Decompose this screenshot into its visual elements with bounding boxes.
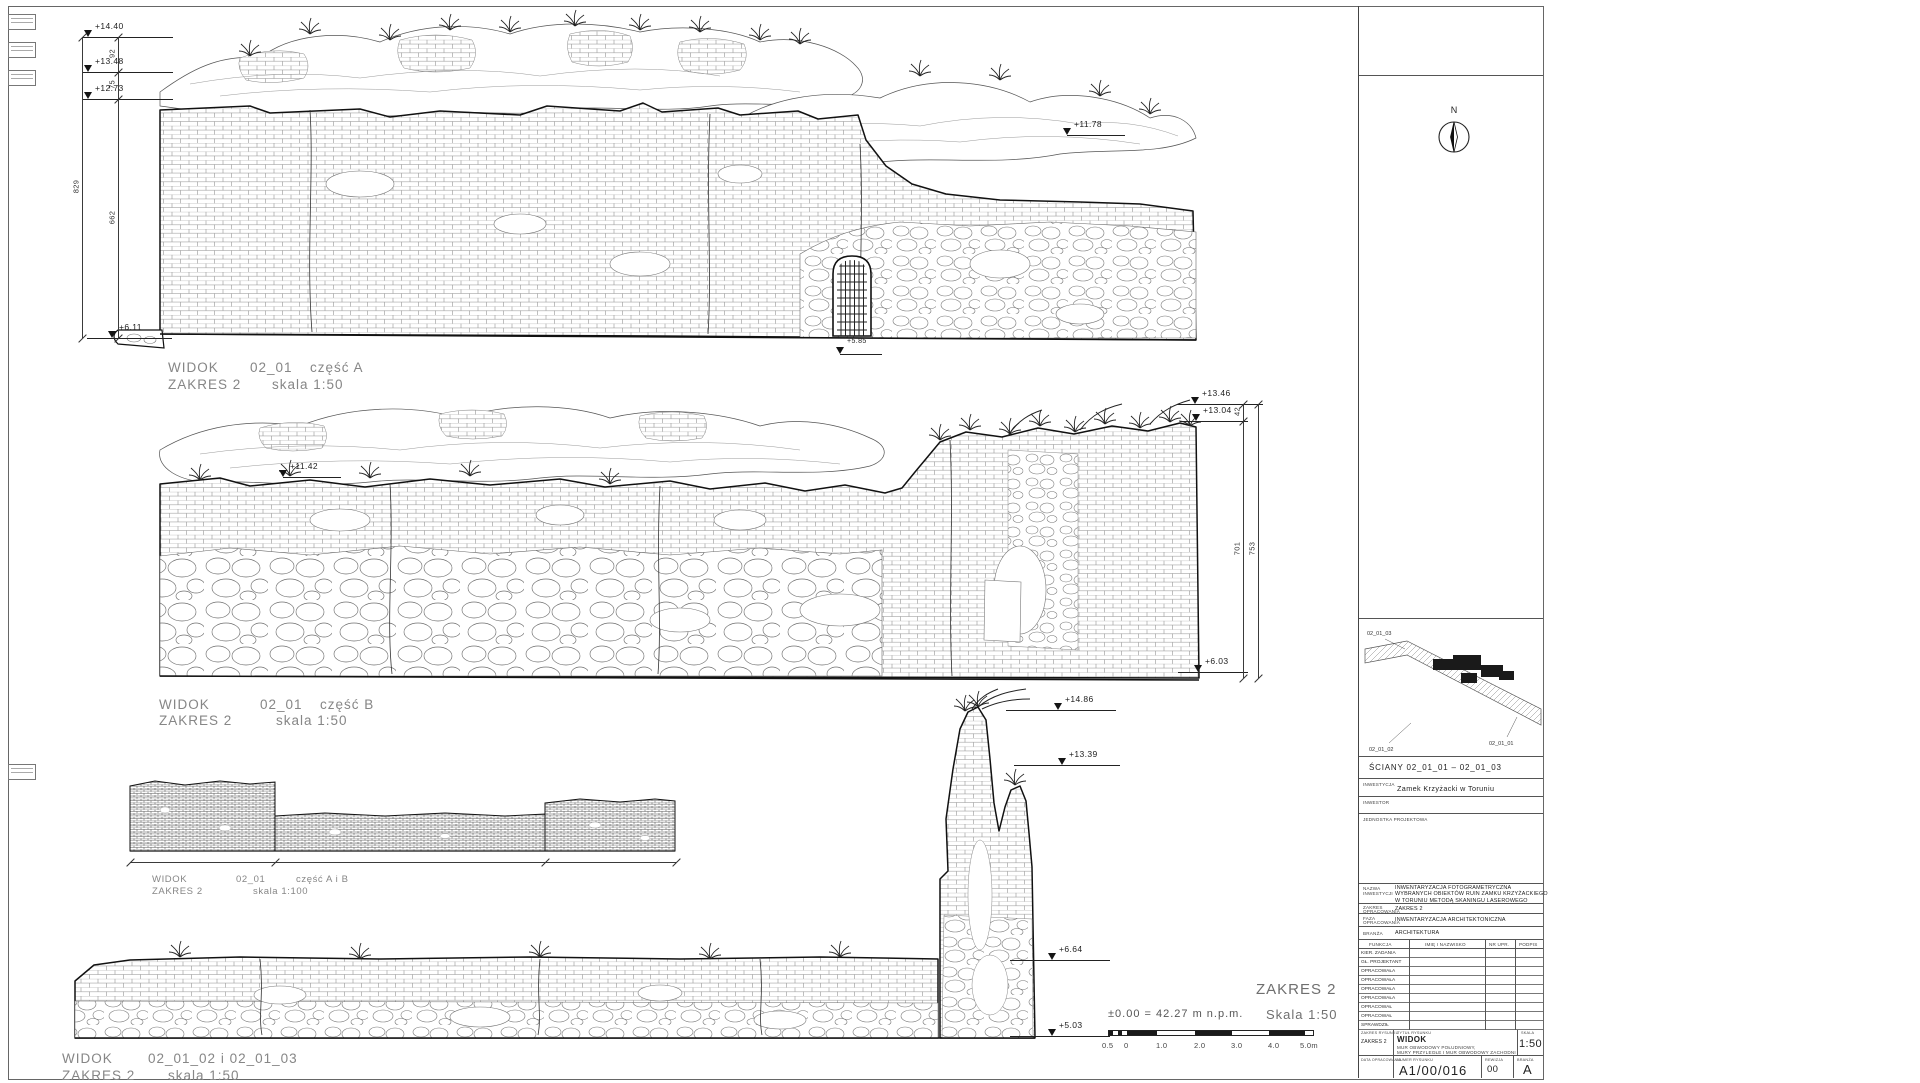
personnel-column-divider [1485,940,1486,1030]
caption-part: część A i B [296,874,349,885]
elevation-marker-arrow [1058,758,1066,765]
elevation-marker-line [82,99,173,100]
elevation-marker-arrow [1194,665,1202,672]
jednostka-row: JEDNOSTKA PROJEKTOWA [1359,814,1543,884]
title-block: N 02_01_03 [1358,6,1542,1078]
inwestycja-value: Zamek Krzyżacki w Toruniu [1397,784,1494,793]
branza-row: BRANŻA ARCHITEKTURA [1359,927,1543,940]
gate-door [833,256,871,336]
margin-tag [8,764,36,780]
site-plan-box: 02_01_03 02_01_02 02_01_01 [1359,618,1543,757]
personnel-role: OPRACOWAŁ [1361,1005,1392,1010]
personnel-header: NR UPR. [1489,942,1509,947]
elevation-marker-line [1010,960,1110,961]
caption-zakres: ZAKRES 2 [62,1068,135,1083]
caption-scale: skala 1:50 [272,377,344,392]
dimension-line [118,37,119,338]
branza-value: ARCHITEKTURA [1395,930,1439,937]
project-name-row: NAZWA INWESTYCJI INWENTARYZACJA FOTOGRAM… [1359,884,1543,904]
strip-branza-value: A [1523,1062,1532,1077]
scale-bar [1108,1030,1314,1036]
inwestor-label: INWESTOR [1363,800,1389,805]
personnel-column-divider [1515,940,1516,1030]
elevation-marker-arrow [1048,953,1056,960]
personnel-role: SPRAWDZIŁ [1361,1023,1389,1028]
elevation-marker-arrow [1063,128,1071,135]
scale-bar-segment [1127,1031,1157,1035]
caption-scale: skala 1:50 [168,1068,240,1083]
site-plan-caption-row: ŚCIANY 02_01_01 – 02_01_03 [1359,757,1543,779]
site-plan-drawing: 02_01_03 02_01_02 02_01_01 [1359,619,1543,758]
elevation-marker-line [82,37,173,38]
personnel-role: KIER. ZADANIA [1361,951,1396,956]
elevation-marker-line [1014,765,1120,766]
caption-part: część A [310,360,364,375]
strip-row-2: DATA OPRACOWANIA NUMER RYSUNKU A1/00/016… [1359,1056,1543,1078]
scale-stamp: Skala 1:50 [1266,1007,1337,1022]
elevation-marker-arrow [1048,1029,1056,1036]
elevation-marker-line [1067,135,1125,136]
elevation-a-drawing [100,14,1220,368]
site-plan-label: 02_01_03 [1367,631,1391,637]
site-plan-label: 02_01_01 [1489,741,1513,747]
zakres-row: ZAKRES OPRACOWANIA ZAKRES 2 [1359,904,1543,914]
scale-value: 1:50 [1519,1038,1542,1050]
elevation-marker-arrow [108,331,116,338]
inwestor-row: INWESTOR [1359,797,1543,814]
inwestycja-label: INWESTYCJA [1363,782,1395,787]
drawing-subtitle-2: MURY PRZYLEGŁE I MUR OBWODOWY ZACHODNI [1397,1050,1516,1055]
elevation-marker-label: +11.78 [1074,119,1102,129]
caption-code: 02_01 [250,360,293,375]
dimension-line [130,862,676,863]
elevation-marker-arrow [84,92,92,99]
elevation-marker-line [82,72,173,73]
site-plan-caption: ŚCIANY 02_01_01 – 02_01_03 [1369,763,1502,772]
compass-n-label: N [1451,105,1458,115]
elevation-marker-arrow [1192,414,1200,421]
personnel-header: FUNKCJA [1369,942,1392,947]
elevation-marker-label: +13.04 [1203,405,1232,415]
margin-tag [8,70,36,86]
date-label: DATA OPRACOWANIA [1361,1058,1401,1063]
scale-label: SKALA [1521,1031,1534,1036]
elevation-marker-line [1006,710,1116,711]
branza-label: BRANŻA [1363,931,1383,936]
elevation-marker-label: +14.40 [95,21,124,31]
dimension-value: 42 [1233,397,1242,427]
dimension-line [1243,404,1244,678]
elevation-marker-arrow [279,470,287,477]
drawing-title: WIDOK [1397,1035,1427,1044]
dimension-value: 829 [72,172,81,202]
elevation-marker-label: +11.42 [290,461,318,471]
elevation-marker-label: +13.46 [1202,388,1231,398]
drawing-number: A1/00/016 [1399,1063,1467,1078]
site-plan-label: 02_01_02 [1369,747,1393,753]
dimension-value: 662 [108,203,117,233]
dimension-value: 701 [1233,534,1242,564]
caption-word: WIDOK [168,360,219,375]
elevation-marker-arrow [1191,397,1199,404]
scale-bar-segment [1195,1031,1232,1035]
personnel-header: PODPIS [1519,942,1538,947]
drawing-sheet: WIDOK 02_01 część A ZAKRES 2 skala 1:50 … [0,0,1920,1080]
elevation-marker-label: +6.11 [119,322,142,332]
strip-zakres-value: ZAKRES 2 [1361,1039,1387,1046]
scale-bar-segment [1118,1031,1122,1035]
faza-value: INWENTARYZACJA ARCHITEKTONICZNA [1395,917,1506,924]
personnel-role: OPRACOWAŁA [1361,987,1395,992]
caption-part: część B [320,697,374,712]
scale-bar-label: 5.0m [1300,1041,1318,1050]
faza-row: FAZA OPRACOWANIA INWENTARYZACJA ARCHITEK… [1359,914,1543,927]
personnel-column-divider [1409,940,1410,1030]
elevation-marker-arrow [84,65,92,72]
elevation-marker-line [283,477,341,478]
project-name-label2: INWESTYCJI [1363,891,1393,896]
caption-scale: skala 1:50 [276,713,348,728]
zakres-value: ZAKRES 2 [1395,906,1423,913]
scale-bar-label: 0.5 [1102,1041,1113,1050]
elevation-marker-line [1010,1036,1110,1037]
caption-word: WIDOK [159,697,210,712]
caption-word: WIDOK [152,874,187,885]
zakres-stamp: ZAKRES 2 [1256,981,1337,998]
datum-note: ±0.00 = 42.27 m n.p.m. [1108,1008,1243,1020]
elevation-marker-arrow [836,347,844,354]
caption-word: WIDOK [62,1051,113,1066]
personnel-header: IMIĘ I NAZWISKO [1425,942,1466,947]
scale-bar-label: 1.0 [1156,1041,1167,1050]
elevation-marker-label: +5.03 [1059,1020,1083,1030]
elevation-marker-label: +13.39 [1069,749,1098,759]
elevation-marker-label: +6.03 [1205,656,1229,666]
caption-zakres: ZAKRES 2 [159,713,232,728]
scale-bar-label: 4.0 [1268,1041,1279,1050]
caption-code: 02_01_02 i 02_01_03 [148,1051,298,1066]
elevation-marker-label: +5.85 [847,338,867,345]
jednostka-label: JEDNOSTKA PROJEKTOWA [1363,817,1428,822]
scale-bar-segment [1269,1031,1305,1035]
personnel-role: OPRACOWAŁA [1361,969,1395,974]
elevation-marker-line [840,354,882,355]
inwestycja-row: INWESTYCJA Zamek Krzyżacki w Toruniu [1359,779,1543,797]
margin-tag [8,14,36,30]
personnel-role: OPRACOWAŁA [1361,978,1395,983]
revision-value: 00 [1487,1064,1498,1075]
personnel-role: GŁ. PROJEKTANT [1361,960,1401,965]
dimension-line [1258,404,1259,678]
scale-bar-label: 3.0 [1231,1041,1242,1050]
compass-rose: N [1434,99,1474,169]
margin-tag [8,42,36,58]
scale-bar-label: 0 [1124,1041,1128,1050]
dimension-value: 92 [108,39,117,69]
elevation-marker-line [1178,672,1248,673]
dimension-line [82,37,83,338]
caption-scale: skala 1:100 [253,886,308,897]
title-block-divider [1359,75,1543,76]
elevation-marker-line [87,338,172,339]
revision-label: REWIZJA [1485,1058,1503,1063]
scale-bar-segment [1109,1031,1113,1035]
caption-zakres: ZAKRES 2 [168,377,241,392]
caption-code: 02_01 [260,697,303,712]
elevation-b-drawing [140,380,1230,694]
personnel-role: OPRACOWAŁA [1361,996,1395,1001]
elevation-bottom-drawing [60,695,1060,1047]
strip-row-1: ZAKRES RYSUNKU ZAKRES 2 TYTUŁ RYSUNKU WI… [1359,1030,1543,1056]
dimension-value: 753 [1248,534,1257,564]
scale-bar-label: 2.0 [1194,1041,1205,1050]
personnel-role: OPRACOWAŁ [1361,1014,1392,1019]
caption-code: 02_01 [236,874,265,885]
elevation-marker-label: +6.64 [1059,944,1083,954]
elevation-marker-label: +14.86 [1065,694,1094,704]
dimension-value: 75 [108,70,117,100]
elevation-marker-arrow [1054,703,1062,710]
caption-zakres: ZAKRES 2 [152,886,203,897]
